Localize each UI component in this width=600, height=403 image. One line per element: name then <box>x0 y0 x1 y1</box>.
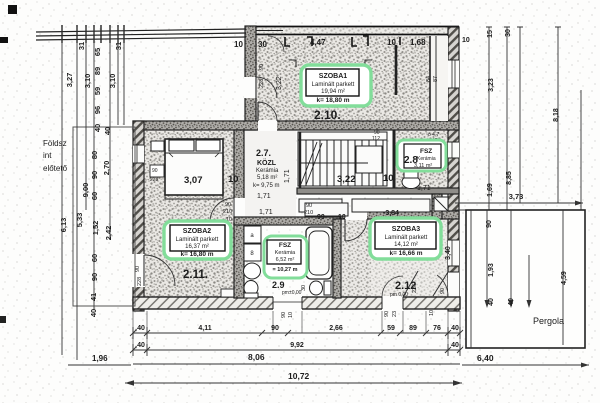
svg-text:1,52: 1,52 <box>91 221 100 236</box>
svg-text:-3,84: -3,84 <box>383 210 399 217</box>
svg-text:5,18 m²: 5,18 m² <box>257 175 277 181</box>
svg-text:k= 18,80 m: k= 18,80 m <box>316 97 349 104</box>
svg-text:90: 90 <box>384 311 390 317</box>
svg-text:228: 228 <box>150 177 159 183</box>
svg-text:31: 31 <box>77 42 86 50</box>
svg-text:Laminált parkett: Laminált parkett <box>312 82 355 88</box>
svg-text:9,00: 9,00 <box>81 183 90 198</box>
svg-text:40: 40 <box>103 127 112 135</box>
svg-text:k= 16,80 m: k= 16,80 m <box>180 251 213 258</box>
svg-text:40: 40 <box>488 298 495 306</box>
svg-text:2,42: 2,42 <box>104 226 113 241</box>
svg-text:15: 15 <box>487 30 494 38</box>
svg-text:2.7.: 2.7. <box>256 148 271 158</box>
svg-text:pm±0,00: pm±0,00 <box>282 290 302 296</box>
svg-text:1,71: 1,71 <box>259 209 273 216</box>
svg-text:210: 210 <box>304 210 313 216</box>
svg-text:10: 10 <box>383 173 394 184</box>
svg-text:2,70: 2,70 <box>102 161 111 176</box>
svg-text:90: 90 <box>486 220 493 228</box>
svg-text:40: 40 <box>451 325 459 332</box>
svg-text:6,52 m²: 6,52 m² <box>276 257 295 263</box>
svg-text:90: 90 <box>90 171 99 179</box>
svg-text:30: 30 <box>258 40 267 49</box>
svg-text:2.9: 2.9 <box>272 280 285 290</box>
svg-text:89: 89 <box>409 325 417 332</box>
svg-text:FSZ: FSZ <box>279 242 291 249</box>
svg-text:3,22: 3,22 <box>337 174 356 185</box>
svg-text:,40: ,40 <box>135 342 145 349</box>
svg-text:10: 10 <box>387 38 396 47</box>
svg-text:1,71: 1,71 <box>417 185 431 192</box>
svg-text:60: 60 <box>90 254 99 262</box>
svg-text:210: 210 <box>223 209 232 215</box>
svg-text:40: 40 <box>89 309 98 317</box>
svg-text:,40: ,40 <box>135 325 145 332</box>
svg-text:10: 10 <box>462 37 470 44</box>
svg-text:1,69: 1,69 <box>487 183 494 197</box>
svg-text:FSZ: FSZ <box>420 148 432 155</box>
svg-text:10: 10 <box>228 174 239 185</box>
svg-text:90: 90 <box>271 325 279 332</box>
svg-text:SZOBA2: SZOBA2 <box>183 228 212 235</box>
svg-text:Pergola: Pergola <box>533 316 564 326</box>
svg-text:3,27: 3,27 <box>65 73 74 88</box>
svg-text:23: 23 <box>392 311 398 317</box>
svg-text:5,33: 5,33 <box>75 213 84 228</box>
svg-text:90: 90 <box>135 266 141 272</box>
svg-text:k= 16,66 m: k= 16,66 m <box>389 250 422 257</box>
svg-text:90: 90 <box>259 64 265 70</box>
svg-text:10: 10 <box>288 312 294 318</box>
svg-text:3,40: 3,40 <box>445 246 452 260</box>
svg-text:Kerámia: Kerámia <box>256 168 279 174</box>
svg-text:96: 96 <box>93 106 102 114</box>
svg-text:1,68: 1,68 <box>410 38 426 47</box>
svg-text:Laminált parkett: Laminált parkett <box>385 235 428 241</box>
svg-text:40: 40 <box>93 124 102 132</box>
svg-text:2,66: 2,66 <box>329 325 343 332</box>
svg-text:228: 228 <box>259 79 265 88</box>
svg-text:6,40: 6,40 <box>477 353 494 363</box>
svg-text:59: 59 <box>93 87 102 95</box>
svg-text:90: 90 <box>440 288 446 294</box>
svg-text:2.11.: 2.11. <box>183 269 208 281</box>
svg-text:3,22: 3,22 <box>276 76 283 90</box>
svg-text:8,06: 8,06 <box>248 352 265 362</box>
svg-text:3,10: 3,10 <box>83 74 92 89</box>
svg-text:40: 40 <box>508 298 515 306</box>
svg-text:Földsz: Földsz <box>43 139 67 148</box>
svg-text:14,12 m²: 14,12 m² <box>394 242 418 248</box>
svg-text:40: 40 <box>451 342 459 349</box>
svg-text:10: 10 <box>429 310 435 316</box>
svg-text:90: 90 <box>225 202 231 208</box>
svg-text:4,47: 4,47 <box>310 38 326 47</box>
svg-text:SZOBA3: SZOBA3 <box>392 226 421 233</box>
svg-text:8,85: 8,85 <box>506 171 513 185</box>
svg-text:60: 60 <box>90 192 99 200</box>
svg-text:3,07: 3,07 <box>184 175 203 186</box>
svg-text:84: 84 <box>426 76 432 82</box>
svg-text:Kerámia: Kerámia <box>275 250 296 256</box>
svg-text:30: 30 <box>505 29 512 37</box>
svg-text:int: int <box>43 151 52 160</box>
svg-text:59: 59 <box>387 325 395 332</box>
svg-text:8,18: 8,18 <box>553 108 560 122</box>
svg-text:16,37 m²: 16,37 m² <box>185 244 209 250</box>
svg-text:6,13: 6,13 <box>59 218 68 233</box>
svg-text:41: 41 <box>89 293 98 301</box>
svg-text:pm 0,00: pm 0,00 <box>390 292 408 298</box>
svg-text:30: 30 <box>301 285 307 291</box>
svg-text:10,72: 10,72 <box>288 371 310 381</box>
svg-text:Laminált parkett: Laminált parkett <box>176 237 219 243</box>
svg-text:KÖZL: KÖZL <box>257 158 277 167</box>
svg-text:90: 90 <box>90 273 99 281</box>
svg-text:4,11: 4,11 <box>198 325 211 332</box>
svg-text:99: 99 <box>317 214 325 221</box>
svg-text:előtető: előtető <box>43 164 68 173</box>
svg-text:112: 112 <box>372 136 380 142</box>
svg-text:9,92: 9,92 <box>290 342 304 349</box>
svg-text:90: 90 <box>152 168 158 174</box>
svg-text:31: 31 <box>114 42 123 50</box>
svg-text:228: 228 <box>137 277 143 286</box>
svg-text:1,71: 1,71 <box>257 193 271 200</box>
svg-text:3,73: 3,73 <box>509 192 524 201</box>
svg-text:89: 89 <box>93 67 102 75</box>
svg-text:1,71: 1,71 <box>284 169 291 183</box>
svg-text:228: 228 <box>412 284 418 293</box>
svg-text:76: 76 <box>433 325 441 332</box>
svg-text:3,23: 3,23 <box>488 78 495 92</box>
svg-text:1,96: 1,96 <box>92 354 108 363</box>
svg-text:90: 90 <box>306 203 312 209</box>
svg-text:Kerámia: Kerámia <box>417 156 436 162</box>
svg-text:1,93: 1,93 <box>488 263 495 277</box>
svg-text:80: 80 <box>90 151 99 159</box>
svg-text:10: 10 <box>338 214 346 221</box>
svg-text:10: 10 <box>234 40 243 49</box>
svg-text:SZOBA1: SZOBA1 <box>319 73 348 80</box>
svg-text:3,11 m²: 3,11 m² <box>414 163 432 169</box>
svg-text:4,59: 4,59 <box>561 271 568 285</box>
svg-text:k= 9,75 m: k= 9,75 m <box>253 183 280 189</box>
svg-text:2.10.: 2.10. <box>314 108 341 122</box>
svg-text:= 10,27 m: = 10,27 m <box>273 267 298 273</box>
svg-text:65: 65 <box>93 48 102 56</box>
svg-text:90: 90 <box>281 312 287 318</box>
svg-text:3,10: 3,10 <box>108 74 117 89</box>
svg-text:19,94 m²: 19,94 m² <box>321 89 345 95</box>
svg-text:87: 87 <box>433 76 439 82</box>
